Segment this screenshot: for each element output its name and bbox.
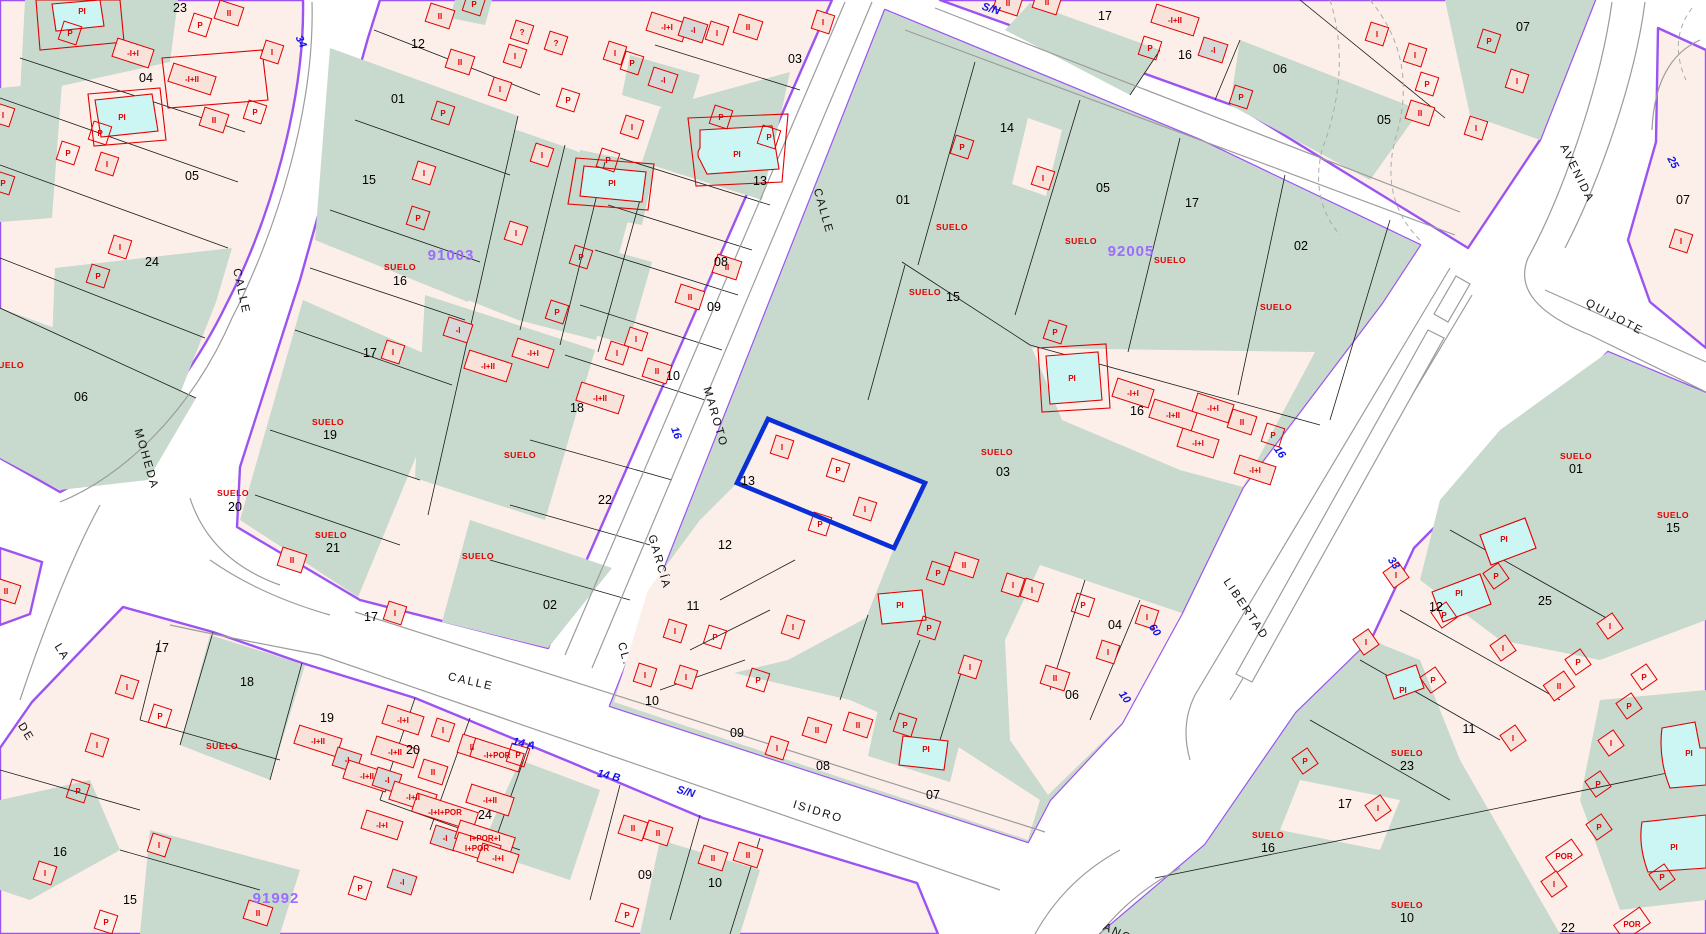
construction-code-label: P <box>67 29 73 38</box>
construction-code-label: II <box>1240 418 1244 427</box>
construction-code-label: I <box>96 741 98 750</box>
parcel-number: 18 <box>570 401 584 415</box>
construction-code-label: II <box>711 854 715 863</box>
construction-code-label: P <box>959 143 965 152</box>
parcel-number: 10 <box>708 876 722 890</box>
construction-code-label: P <box>65 149 71 158</box>
construction-code-label: I <box>1609 622 1611 631</box>
parcel-number: 15 <box>123 893 137 907</box>
construction-code-label: P <box>252 108 258 117</box>
construction-code-label: P <box>0 179 6 188</box>
parcel-number: 17 <box>364 610 378 624</box>
construction-code-label: -I <box>1211 46 1216 55</box>
construction-code-label: P <box>95 272 101 281</box>
parcel-number: 23 <box>1400 759 1414 773</box>
suelo-label: SUELO <box>315 530 347 540</box>
construction-code-label: PI <box>118 113 126 122</box>
parcel-number: 11 <box>687 599 700 613</box>
parcel-number: 16 <box>393 274 407 288</box>
construction-code-label: PI <box>896 601 904 610</box>
cadastral-map-viewport[interactable]: PPIP-I+I-I+IIIIIIIPPIPIPIPIPPII??IIII-I+… <box>0 0 1706 934</box>
construction-code-label: -I <box>661 76 666 85</box>
construction-code-label: II <box>1557 682 1561 691</box>
construction-code-label: -I <box>443 834 448 843</box>
construction-code-label: II <box>631 824 635 833</box>
construction-code-label: II <box>856 721 860 730</box>
suelo-label: SUELO <box>1560 451 1592 461</box>
construction-code-label: I <box>423 169 425 178</box>
construction-code-label: I+POR <box>465 844 489 853</box>
parcel-number: 09 <box>638 868 652 882</box>
street-address-number: 16 <box>668 425 684 441</box>
suelo-label: SUELO <box>217 488 249 498</box>
construction-code-label: I <box>394 609 396 618</box>
cadastral-block-number: 91992 <box>253 890 300 907</box>
construction-code-label: I <box>271 48 273 57</box>
construction-code-label: P <box>755 676 761 685</box>
construction-code-label: I <box>1031 586 1033 595</box>
construction-code-label: P <box>1595 780 1601 789</box>
parcel-number: 09 <box>730 726 744 740</box>
street-name-label: ISIDRO <box>791 799 844 826</box>
construction-code-label: PI <box>608 179 616 188</box>
construction-code-label: I <box>1377 804 1379 813</box>
construction-code-label: POR <box>1623 920 1641 929</box>
construction-code-label: I <box>106 160 108 169</box>
construction-code-label: P <box>554 308 560 317</box>
construction-code-label: PI <box>1500 535 1508 544</box>
parcel-number: 24 <box>145 255 159 269</box>
construction-code-label: I <box>1395 571 1397 580</box>
parcel-number: 23 <box>173 1 187 15</box>
construction-code-label: P <box>1575 658 1581 667</box>
construction-code-label: PI <box>78 7 86 16</box>
construction-code-label: -I+II <box>1166 411 1180 420</box>
parcel-number: 17 <box>1185 196 1199 210</box>
construction-code-label: P <box>1596 823 1602 832</box>
suelo-label: SUELO <box>1154 255 1186 265</box>
construction-code-label: II <box>4 587 8 596</box>
construction-code-label: -I+II <box>360 772 374 781</box>
street-name-label: LA <box>52 642 72 664</box>
parcel-number: 07 <box>1676 193 1690 207</box>
construction-code-label: P <box>357 884 363 893</box>
construction-code-label: P <box>1238 93 1244 102</box>
construction-code-label: PI <box>1399 686 1407 695</box>
construction-code-label: P <box>471 0 477 9</box>
construction-code-label: II <box>1045 0 1049 7</box>
construction-code-label: I+POR+I <box>469 834 500 843</box>
parcel-number: 07 <box>926 788 940 802</box>
construction-code-label: I <box>1146 613 1148 622</box>
construction-code-label: -I <box>400 878 405 887</box>
parcel-number: 24 <box>478 808 492 822</box>
construction-code-label: I <box>1042 174 1044 183</box>
construction-code-label: P <box>1430 676 1436 685</box>
parcel-number: 25 <box>1538 594 1552 608</box>
construction-code-label: I <box>1414 51 1416 60</box>
construction-code-label: -I+I <box>1249 466 1261 475</box>
construction-code-label: P <box>718 113 724 122</box>
suelo-label: SUELO <box>909 287 941 297</box>
suelo-label: SUELO <box>0 360 24 370</box>
construction-code-label: P <box>103 918 109 927</box>
construction-code-label: P <box>1626 702 1632 711</box>
construction-code-label: P <box>902 721 908 730</box>
parcel-number: 02 <box>543 598 557 612</box>
parcel-number: 03 <box>996 465 1010 479</box>
parcel-number: 15 <box>1666 521 1680 535</box>
construction-code-label: I <box>1376 30 1378 39</box>
parcel-number: 09 <box>707 300 721 314</box>
construction-code-label: I <box>1012 581 1014 590</box>
parcel-number: 16 <box>1178 48 1192 62</box>
parcel-number: 04 <box>139 71 153 85</box>
parcel-number: 16 <box>1261 841 1275 855</box>
parcel-number: 20 <box>406 743 420 757</box>
construction-code-label: -I+POR <box>484 751 511 760</box>
construction-code-label: P <box>565 96 571 105</box>
construction-code-label: II <box>746 851 750 860</box>
suelo-label: SUELO <box>1657 510 1689 520</box>
cadastral-block-number: 91003 <box>428 247 475 264</box>
parcel-number: 12 <box>1429 600 1443 614</box>
construction-code-label: -I+I <box>1207 404 1219 413</box>
construction-code-label: P <box>515 751 521 760</box>
street-name-label: LIBERTAD <box>1221 576 1271 642</box>
construction-code-label: I <box>392 348 394 357</box>
construction-code-label: I <box>635 335 637 344</box>
parcel-number: 18 <box>240 675 254 689</box>
construction-code-label: POR <box>1555 852 1573 861</box>
suelo-label: SUELO <box>981 447 1013 457</box>
construction-code-label: P <box>935 569 941 578</box>
street-name-label: QUIJOTE <box>1583 297 1645 338</box>
construction-code-label: -I+I <box>661 23 673 32</box>
construction-code-label: -I+I <box>527 349 539 358</box>
construction-code-label: I <box>2 111 4 120</box>
construction-code-label: -I <box>456 326 461 335</box>
construction-code-label: -I <box>691 26 696 35</box>
parcel-number: 08 <box>714 255 728 269</box>
cadastral-block-number: 92005 <box>1108 243 1155 260</box>
parcel-number: 19 <box>320 711 334 725</box>
construction-code-label: PI <box>1455 589 1463 598</box>
construction-code-label: I <box>685 673 687 682</box>
construction-code-label: II <box>212 116 216 125</box>
construction-code-label: II <box>655 367 659 376</box>
construction-code-label: -I+II <box>388 748 402 757</box>
construction-code-label: I <box>1502 644 1504 653</box>
construction-code-label: P <box>712 633 718 642</box>
parcel-number: 10 <box>666 369 680 383</box>
construction-code-label: I <box>442 726 444 735</box>
construction-code-label: P <box>1302 757 1308 766</box>
suelo-label: SUELO <box>504 450 536 460</box>
parcel-number: 01 <box>896 193 910 207</box>
suelo-label: SUELO <box>1252 830 1284 840</box>
construction-code-label: P <box>197 21 203 30</box>
construction-code-label: P <box>75 787 81 796</box>
construction-code-label: P <box>415 214 421 223</box>
cadastral-map[interactable]: PPIP-I+I-I+IIIIIIIPPIPIPIPIPPII??IIII-I+… <box>0 0 1706 934</box>
parcel-number: 22 <box>1561 921 1575 934</box>
construction-code-label: I <box>1516 77 1518 86</box>
construction-code-label: I <box>616 349 618 358</box>
parcel-number: 10 <box>1400 911 1414 925</box>
parcel-number: 01 <box>1569 462 1583 476</box>
construction-code-label: P <box>1659 873 1665 882</box>
construction-code-label: P <box>817 520 823 529</box>
construction-code-label: -I+I <box>492 854 504 863</box>
parcel-number: 16 <box>1130 404 1144 418</box>
construction-code-label: I <box>792 623 794 632</box>
suelo-label: SUELO <box>206 741 238 751</box>
construction-code-label: -I+I <box>376 821 388 830</box>
construction-code-label: -I <box>385 776 390 785</box>
construction-code-label: I <box>1475 124 1477 133</box>
construction-code-label: I <box>1553 880 1555 889</box>
construction-code-label: P <box>1080 601 1086 610</box>
suelo-label: SUELO <box>936 222 968 232</box>
parcel-number: 21 <box>326 541 340 555</box>
construction-code-label: I <box>515 229 517 238</box>
suelo-label: SUELO <box>1391 748 1423 758</box>
construction-code-label: I <box>514 52 516 61</box>
construction-code-label: I <box>864 505 866 514</box>
construction-code-label: P <box>157 712 163 721</box>
parcel-number: 14 <box>1000 121 1014 135</box>
construction-code-label: P <box>1052 328 1058 337</box>
suelo-label: SUELO <box>312 417 344 427</box>
construction-code-label: II <box>688 293 692 302</box>
parcel-number: 16 <box>53 845 67 859</box>
construction-code-label: P <box>1486 37 1492 46</box>
construction-code-label: -I+I <box>397 716 409 725</box>
construction-code-label: P <box>926 624 932 633</box>
construction-code-label: P <box>766 133 772 142</box>
parcel-number: 17 <box>1098 9 1112 23</box>
parcel-number: 06 <box>74 390 88 404</box>
construction-code-label: I <box>541 151 543 160</box>
construction-code-label: I <box>822 18 824 27</box>
construction-code-label: I <box>776 744 778 753</box>
construction-code-label: -I+I+POR <box>428 808 462 817</box>
construction-code-label: II <box>962 561 966 570</box>
parcel-number: 02 <box>1294 239 1308 253</box>
construction-code-label: -I+II <box>481 362 495 371</box>
parcel-number: 17 <box>1338 797 1352 811</box>
construction-code-label: II <box>227 9 231 18</box>
construction-code-label: II <box>431 768 435 777</box>
parcel-number: 03 <box>788 52 802 66</box>
construction-code-label: P <box>1641 673 1647 682</box>
parcel-number: 15 <box>946 290 960 304</box>
construction-code-label: I <box>674 627 676 636</box>
construction-code-label: PI <box>922 745 930 754</box>
construction-code-label: I <box>631 123 633 132</box>
parcel-number: 17 <box>155 641 169 655</box>
parcel-number: 13 <box>753 174 767 188</box>
construction-code-label: P <box>835 466 841 475</box>
construction-code-label: I <box>644 671 646 680</box>
construction-code-label: I <box>1107 648 1109 657</box>
construction-code-label: -I+I <box>127 49 139 58</box>
construction-code-label: II <box>815 726 819 735</box>
construction-code-label: I <box>158 841 160 850</box>
construction-code-label: P <box>1493 572 1499 581</box>
parcel-number: 11 <box>1463 722 1476 736</box>
parcel-number: 15 <box>362 173 376 187</box>
construction-code-label: II <box>470 743 474 752</box>
parcel-number: 12 <box>411 37 425 51</box>
parcel-number: 10 <box>645 694 659 708</box>
construction-code-label: -I+II <box>593 394 607 403</box>
suelo-label: SUELO <box>384 262 416 272</box>
street-name-label: CL. <box>615 641 633 667</box>
construction-code-label: P <box>97 129 103 138</box>
construction-code-label: I <box>499 85 501 94</box>
construction-code-label: -I <box>345 756 350 765</box>
construction-code-label: -I+II <box>1168 16 1182 25</box>
construction-code-label: P <box>1424 80 1430 89</box>
suelo-label: SUELO <box>1391 900 1423 910</box>
construction-code-label: ? <box>554 39 559 48</box>
construction-code-label: II <box>656 829 660 838</box>
construction-code-label: I <box>969 663 971 672</box>
street-name-label: CALLE <box>447 671 495 693</box>
construction-code-label: I <box>119 243 121 252</box>
construction-code-label: P <box>1270 431 1276 440</box>
construction-code-label: P <box>1147 44 1153 53</box>
construction-code-label: I <box>1512 734 1514 743</box>
construction-code-label: -I+I <box>1127 389 1139 398</box>
construction-code-label: II <box>1418 109 1422 118</box>
construction-code-label: II <box>1006 0 1010 8</box>
street-address-number: S/N <box>675 784 697 801</box>
construction-code-label: PI <box>733 150 741 159</box>
parcel-number: 22 <box>598 493 612 507</box>
parcel-number: 06 <box>1065 688 1079 702</box>
construction-code-label: I <box>614 49 616 58</box>
parcel-number: 20 <box>228 500 242 514</box>
parcel-number: 05 <box>1096 181 1110 195</box>
construction-code-label: ? <box>520 28 525 37</box>
parcel-number: 06 <box>1273 62 1287 76</box>
construction-code-label: -I+II <box>185 75 199 84</box>
parcel-number: 19 <box>323 428 337 442</box>
construction-code-label: I <box>1365 638 1367 647</box>
parcel-number: 05 <box>185 169 199 183</box>
construction-code-label: P <box>440 109 446 118</box>
construction-code-label: PI <box>1685 749 1693 758</box>
parcel-number: 12 <box>718 538 732 552</box>
construction-code-label: I <box>44 869 46 878</box>
parcel-number: 07 <box>1516 20 1530 34</box>
construction-code-label: I <box>716 29 718 38</box>
construction-code-label: -I+I <box>1192 439 1204 448</box>
parcel-number: 13 <box>741 474 755 488</box>
construction-code-label: II <box>1053 674 1057 683</box>
street-name-label: AVENIDA <box>1557 142 1596 204</box>
construction-code-label: I <box>781 443 783 452</box>
construction-code-label: -I+II <box>311 737 325 746</box>
construction-code-label: P <box>629 59 635 68</box>
construction-code-label: II <box>746 23 750 32</box>
parcel-number: 01 <box>391 92 405 106</box>
construction-code-label: PI <box>1068 374 1076 383</box>
construction-code-label: II <box>458 58 462 67</box>
construction-code-label: II <box>256 909 260 918</box>
parcel-number: 04 <box>1108 618 1122 632</box>
suelo-label: SUELO <box>1065 236 1097 246</box>
construction-code-label: I <box>1680 237 1682 246</box>
construction-code-label: P <box>624 911 630 920</box>
construction-code-label: II <box>290 556 294 565</box>
parcel-number: 17 <box>363 346 377 360</box>
suelo-label: SUELO <box>462 551 494 561</box>
construction-code-label: -I+II <box>483 796 497 805</box>
parcel-number: 05 <box>1377 113 1391 127</box>
parcel-number: 08 <box>816 759 830 773</box>
construction-code-label: PI <box>1670 843 1678 852</box>
suelo-label: SUELO <box>1260 302 1292 312</box>
construction-code-label: I <box>126 683 128 692</box>
construction-code-label: -I+II <box>406 793 420 802</box>
construction-code-label: I <box>1610 739 1612 748</box>
construction-code-label: P <box>578 253 584 262</box>
construction-code-label: P <box>605 156 611 165</box>
construction-code-label: II <box>438 12 442 21</box>
